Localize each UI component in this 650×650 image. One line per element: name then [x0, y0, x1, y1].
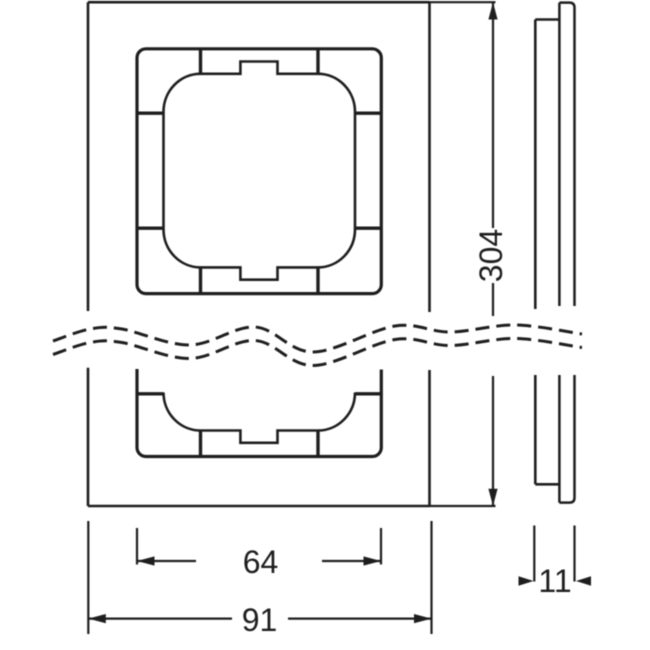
svg-text:64: 64 — [243, 544, 279, 580]
svg-text:304: 304 — [473, 229, 509, 282]
svg-text:11: 11 — [538, 563, 571, 599]
svg-text:91: 91 — [242, 602, 278, 638]
